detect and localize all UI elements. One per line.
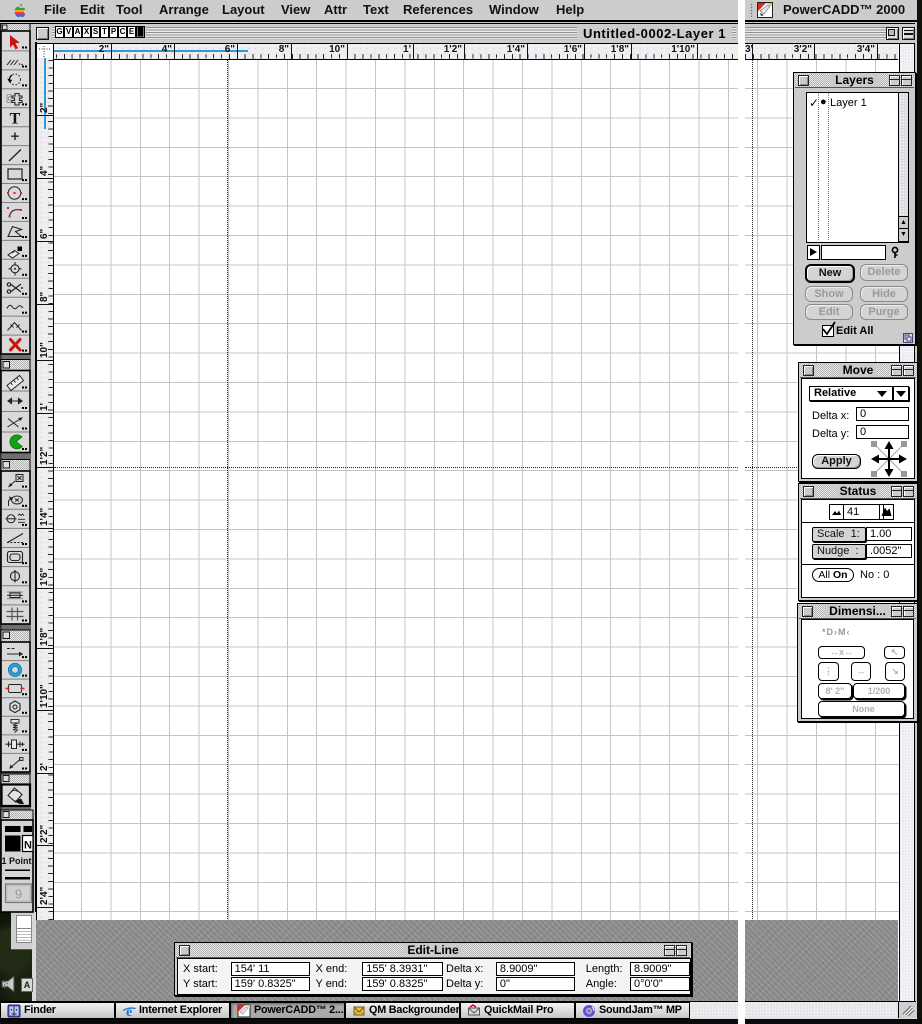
svg-text:9: 9 — [15, 887, 22, 902]
svg-text:e: e — [126, 1005, 132, 1018]
svg-text:N: N — [24, 840, 32, 852]
svg-text:1 Point: 1 Point — [2, 856, 32, 866]
svg-text:T: T — [10, 111, 21, 128]
